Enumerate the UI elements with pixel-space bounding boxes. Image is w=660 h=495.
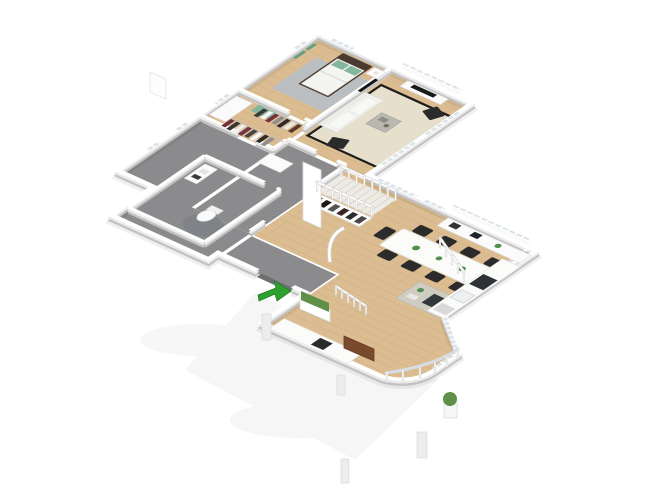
floor-plan-render <box>0 0 660 495</box>
chimney <box>150 72 166 99</box>
ground-shadow <box>230 402 370 438</box>
ground-shadow <box>140 324 260 356</box>
potted-plant <box>443 392 457 418</box>
open-door-leaf <box>303 162 321 228</box>
floor-plan <box>0 0 660 495</box>
